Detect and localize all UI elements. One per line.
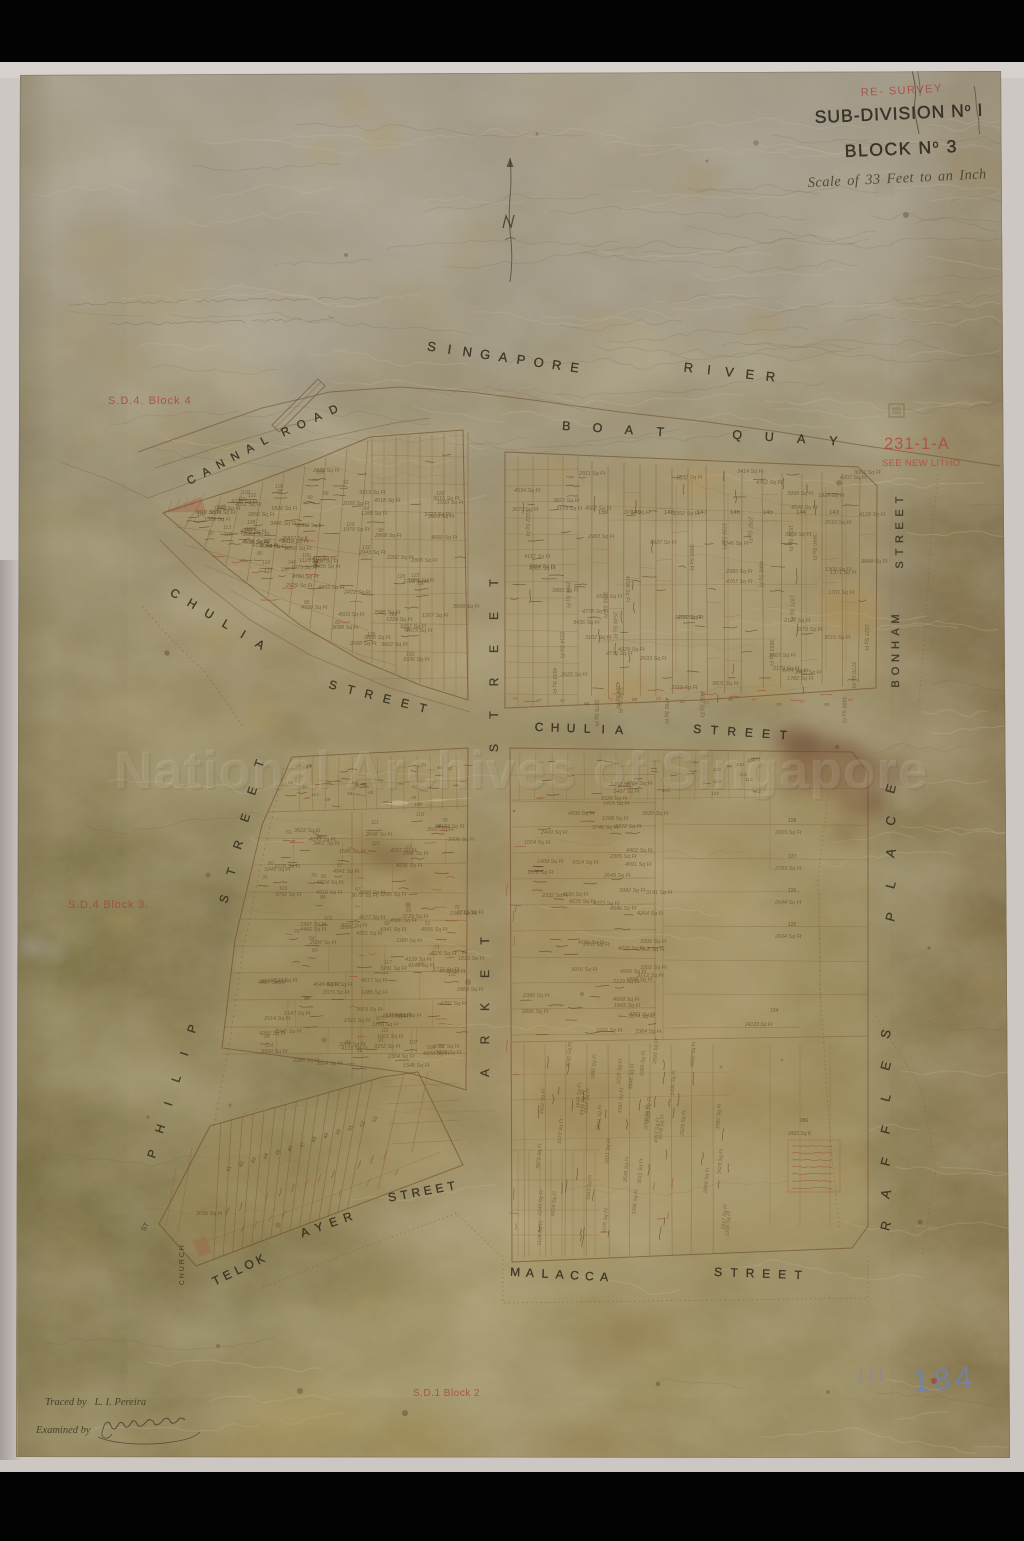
svg-text:2151 Sq Ft: 2151 Sq Ft xyxy=(582,942,610,948)
svg-text:3279 Sq Ft: 3279 Sq Ft xyxy=(593,700,599,727)
svg-text:A: A xyxy=(600,1270,609,1284)
svg-text:4201 Sq Ft: 4201 Sq Ft xyxy=(629,1012,656,1018)
svg-text:3489 Sq Ft: 3489 Sq Ft xyxy=(840,696,846,723)
svg-text:4540 Sq Ft: 4540 Sq Ft xyxy=(791,505,818,511)
svg-text:4580 Sq Ft: 4580 Sq Ft xyxy=(390,918,417,924)
svg-text:3461 Sq Ft: 3461 Sq Ft xyxy=(313,841,340,847)
svg-text:2856 Sq Ft: 2856 Sq Ft xyxy=(247,512,275,518)
svg-text:T: T xyxy=(656,425,665,440)
svg-text:107: 107 xyxy=(409,1040,418,1046)
svg-text:4260 Sq Ft: 4260 Sq Ft xyxy=(259,1031,286,1037)
svg-text:3399 Sq Ft: 3399 Sq Ft xyxy=(640,939,667,945)
svg-text:88: 88 xyxy=(320,895,326,901)
svg-text:26811 Sq ft: 26811 Sq ft xyxy=(295,523,322,529)
svg-text:R: R xyxy=(894,535,906,543)
svg-text:100: 100 xyxy=(197,512,206,518)
svg-text:3990 Sq Ft: 3990 Sq Ft xyxy=(261,1049,288,1055)
svg-text:145: 145 xyxy=(763,510,774,516)
svg-text:184: 184 xyxy=(911,1360,977,1399)
svg-text:2332 Sq Ft: 2332 Sq Ft xyxy=(541,893,569,899)
svg-text:R: R xyxy=(727,724,737,739)
svg-text:2673 Sq Ft: 2673 Sq Ft xyxy=(405,628,433,634)
svg-text:Examined by: Examined by xyxy=(35,1425,91,1436)
svg-text:1061 Sq Ft: 1061 Sq Ft xyxy=(377,1034,404,1040)
svg-text:A: A xyxy=(526,1266,535,1280)
svg-text:116: 116 xyxy=(340,925,348,931)
svg-text:3601 Sq Ft: 3601 Sq Ft xyxy=(712,681,739,687)
svg-text:4264 Sq Ft: 4264 Sq Ft xyxy=(637,911,664,917)
svg-text:2305 Sq Ft: 2305 Sq Ft xyxy=(609,854,637,860)
svg-text:O: O xyxy=(533,354,545,370)
svg-text:3672 Sq Ft: 3672 Sq Ft xyxy=(512,507,539,513)
svg-text:3827 Sq Ft: 3827 Sq Ft xyxy=(553,498,580,504)
svg-text:A: A xyxy=(555,1267,564,1281)
svg-text:57: 57 xyxy=(376,1016,382,1022)
svg-text:M: M xyxy=(890,614,902,623)
svg-text:A: A xyxy=(797,432,807,447)
svg-text:3714 Sq Ft: 3714 Sq Ft xyxy=(624,510,651,516)
svg-text:M: M xyxy=(510,1265,521,1280)
svg-text:3291 Sq Ft: 3291 Sq Ft xyxy=(380,966,407,972)
svg-text:2420 Sq ft: 2420 Sq ft xyxy=(787,1131,811,1137)
svg-text:1298 Sq Ft: 1298 Sq Ft xyxy=(675,615,702,621)
svg-text:80: 80 xyxy=(632,697,638,702)
svg-text:A: A xyxy=(478,1069,492,1077)
svg-text:66: 66 xyxy=(584,701,590,706)
svg-text:146: 146 xyxy=(730,510,741,516)
svg-text:3455 Sq Ft: 3455 Sq Ft xyxy=(314,564,341,570)
svg-text:100: 100 xyxy=(302,553,311,559)
svg-text:83: 83 xyxy=(560,698,566,703)
svg-text:3016 Sq Ft: 3016 Sq Ft xyxy=(824,635,851,641)
svg-text:T: T xyxy=(478,937,492,945)
svg-text:116: 116 xyxy=(372,841,380,847)
svg-text:1388 Sq Ft: 1388 Sq Ft xyxy=(204,517,231,523)
svg-text:51: 51 xyxy=(425,921,431,927)
svg-text:125: 125 xyxy=(788,922,797,928)
svg-text:103: 103 xyxy=(416,812,425,818)
svg-text:S: S xyxy=(714,1265,722,1279)
svg-text:1832 Sq Ft: 1832 Sq Ft xyxy=(676,475,703,481)
svg-text:1586 Sq Ft: 1586 Sq Ft xyxy=(339,849,366,855)
svg-text:64: 64 xyxy=(309,936,315,942)
svg-text:111: 111 xyxy=(238,497,246,503)
svg-text:2688 Sq Ft: 2688 Sq Ft xyxy=(349,641,377,647)
svg-text:1926 Sq Ft: 1926 Sq Ft xyxy=(596,1028,623,1034)
svg-text:U: U xyxy=(567,721,576,735)
svg-text:111: 111 xyxy=(371,820,379,826)
svg-text:National Archives of Singapore: National Archives of Singapore xyxy=(114,741,928,800)
svg-text:1004 Sq Ft: 1004 Sq Ft xyxy=(524,840,551,846)
svg-text:S.D.4 Block 3.: S.D.4 Block 3. xyxy=(68,899,149,911)
svg-text:3982 Sq Ft: 3982 Sq Ft xyxy=(619,888,646,894)
svg-text:71: 71 xyxy=(434,945,440,951)
svg-text:4796 Sq Ft: 4796 Sq Ft xyxy=(663,697,669,724)
svg-text:2865 Sq Ft: 2865 Sq Ft xyxy=(410,558,438,564)
svg-text:70: 70 xyxy=(311,873,317,879)
svg-text:1266 Sq Ft: 1266 Sq Ft xyxy=(372,1022,399,1028)
svg-text:126: 126 xyxy=(436,491,445,497)
svg-text:E: E xyxy=(478,970,492,978)
svg-text:4503 Sq Ft: 4503 Sq Ft xyxy=(338,612,365,618)
svg-text:4207 Sq Ft: 4207 Sq Ft xyxy=(840,475,867,481)
svg-text:4251 Sq Ft: 4251 Sq Ft xyxy=(356,931,383,937)
svg-text:103: 103 xyxy=(262,560,271,566)
svg-text:3679 Sq Ft: 3679 Sq Ft xyxy=(351,893,378,899)
svg-text:3152 Sq Ft: 3152 Sq Ft xyxy=(374,1044,401,1050)
svg-text:L: L xyxy=(541,1267,549,1281)
svg-text:3770 Sq Ft: 3770 Sq Ft xyxy=(850,662,856,689)
svg-text:U: U xyxy=(764,430,774,445)
svg-text:95: 95 xyxy=(824,702,830,707)
svg-text:E: E xyxy=(894,522,906,529)
svg-text:3569 Sq Ft: 3569 Sq Ft xyxy=(688,544,694,571)
svg-text:82: 82 xyxy=(321,874,327,880)
svg-text:90: 90 xyxy=(378,528,384,534)
svg-text:4691 Sq Ft: 4691 Sq Ft xyxy=(625,862,652,868)
svg-text:4666 Sq Ft: 4666 Sq Ft xyxy=(758,561,764,588)
svg-text:4345 Sq Ft: 4345 Sq Ft xyxy=(382,1014,409,1020)
svg-text:2604 Sq Ft: 2604 Sq Ft xyxy=(774,934,802,940)
svg-text:2449 Sq Ft: 2449 Sq Ft xyxy=(540,830,568,836)
svg-text:1502 Sq Ft: 1502 Sq Ft xyxy=(640,965,667,971)
svg-text:86: 86 xyxy=(323,491,329,497)
svg-text:84: 84 xyxy=(345,1040,351,1046)
svg-text:H: H xyxy=(179,1273,186,1279)
svg-text:3787 Sq Ft: 3787 Sq Ft xyxy=(433,1044,460,1050)
svg-text:121: 121 xyxy=(248,493,257,499)
svg-text:H: H xyxy=(551,720,560,734)
svg-text:79: 79 xyxy=(512,696,518,701)
svg-text:82: 82 xyxy=(335,620,341,626)
svg-text:103: 103 xyxy=(279,886,288,892)
svg-text:4128 Sq Ft: 4128 Sq Ft xyxy=(859,512,886,518)
svg-text:75: 75 xyxy=(776,702,782,707)
svg-text:2386 Sq Ft: 2386 Sq Ft xyxy=(292,1058,320,1064)
svg-text:57: 57 xyxy=(337,863,343,869)
svg-text:4195 Sq Ft: 4195 Sq Ft xyxy=(252,543,279,549)
svg-text:3702 Sq Ft: 3702 Sq Ft xyxy=(275,892,302,898)
svg-text:R: R xyxy=(746,1266,755,1280)
svg-text:55: 55 xyxy=(286,830,292,836)
svg-text:3773 Sq Ft: 3773 Sq Ft xyxy=(796,627,823,633)
svg-text:91: 91 xyxy=(343,480,349,486)
svg-text:R: R xyxy=(683,360,694,376)
svg-text:90: 90 xyxy=(208,531,214,537)
svg-text:118: 118 xyxy=(224,532,232,538)
svg-text:E: E xyxy=(487,645,501,653)
svg-text:2372 Sq Ft: 2372 Sq Ft xyxy=(614,824,642,830)
svg-text:E: E xyxy=(744,725,753,740)
svg-text:3375 Sq Ft: 3375 Sq Ft xyxy=(323,990,350,996)
svg-text:129: 129 xyxy=(346,522,355,528)
svg-text:2364 Sq Ft: 2364 Sq Ft xyxy=(634,1029,662,1035)
svg-text:S.D.4. Block 4: S.D.4. Block 4 xyxy=(108,395,192,407)
svg-text:4341 Sq Ft: 4341 Sq Ft xyxy=(380,927,407,933)
svg-text:3916 Sq Ft: 3916 Sq Ft xyxy=(571,967,598,973)
svg-text:4140 Sq Ft: 4140 Sq Ft xyxy=(408,963,435,969)
svg-text:108: 108 xyxy=(414,802,422,808)
svg-text:2633 Sq Ft: 2633 Sq Ft xyxy=(639,656,667,662)
svg-text:47: 47 xyxy=(536,698,542,703)
svg-text:3179 Sq Ft: 3179 Sq Ft xyxy=(556,506,583,512)
svg-text:3352 Sq Ft: 3352 Sq Ft xyxy=(673,511,700,517)
svg-text:2983 Sq Ft: 2983 Sq Ft xyxy=(725,569,753,575)
svg-text:127: 127 xyxy=(788,854,797,860)
svg-text:3190 Sq Ft: 3190 Sq Ft xyxy=(616,687,622,714)
svg-text:4265 Sq Ft: 4265 Sq Ft xyxy=(529,566,556,572)
svg-text:2321 Sq Ft: 2321 Sq Ft xyxy=(343,1018,371,1024)
svg-text:2127 Sq Ft: 2127 Sq Ft xyxy=(783,618,811,624)
svg-text:67: 67 xyxy=(752,697,758,702)
svg-text:4193 Sq Ft: 4193 Sq Ft xyxy=(438,824,465,830)
svg-text:4738 Sq Ft: 4738 Sq Ft xyxy=(439,969,466,975)
svg-text:4096 Sq Ft: 4096 Sq Ft xyxy=(624,576,630,603)
svg-text:4025 Sq Ft: 4025 Sq Ft xyxy=(618,946,645,952)
svg-text:86: 86 xyxy=(462,950,468,956)
svg-text:2783 Sq Ft: 2783 Sq Ft xyxy=(774,866,802,872)
svg-text:128: 128 xyxy=(788,818,797,824)
svg-text:4534 Sq Ft: 4534 Sq Ft xyxy=(514,488,541,494)
svg-text:1027 Sq Ft: 1027 Sq Ft xyxy=(863,624,869,651)
svg-text:84: 84 xyxy=(364,506,370,512)
svg-text:Traced by L. I. Pereira: Traced by L. I. Pereira xyxy=(45,1397,146,1408)
svg-text:4833 Sq Ft: 4833 Sq Ft xyxy=(551,667,557,694)
svg-text:E: E xyxy=(487,612,501,620)
svg-text:S.D.1 Block 2: S.D.1 Block 2 xyxy=(413,1388,480,1399)
svg-text:A: A xyxy=(624,423,634,438)
svg-text:2644 Sq Ft: 2644 Sq Ft xyxy=(774,900,802,906)
svg-text:Y: Y xyxy=(829,434,839,449)
svg-text:3658 Sq Ft: 3658 Sq Ft xyxy=(453,604,480,610)
svg-text:4562 Sq Ft: 4562 Sq Ft xyxy=(585,506,612,512)
svg-text:2010 Sq Ft: 2010 Sq Ft xyxy=(824,520,852,526)
svg-text:G: G xyxy=(479,346,491,362)
svg-text:T: T xyxy=(794,1268,802,1282)
svg-text:3102 Sq Ft: 3102 Sq Ft xyxy=(585,635,612,641)
svg-text:76: 76 xyxy=(294,929,300,935)
svg-text:3414 Sq Ft: 3414 Sq Ft xyxy=(737,469,764,475)
svg-text:N: N xyxy=(890,654,902,662)
svg-text:2214 Sq Ft: 2214 Sq Ft xyxy=(558,631,564,659)
svg-text:4068 Sq Ft: 4068 Sq Ft xyxy=(613,997,640,1003)
svg-text:143: 143 xyxy=(829,510,840,516)
svg-text:S: S xyxy=(693,722,702,737)
svg-text:3722 Sq Ft: 3722 Sq Ft xyxy=(424,512,451,518)
svg-text:3035 Sq Ft: 3035 Sq Ft xyxy=(196,1211,223,1217)
svg-text:2549 Sq Ft: 2549 Sq Ft xyxy=(611,611,617,639)
svg-text:45: 45 xyxy=(728,697,734,702)
svg-text:76: 76 xyxy=(454,905,460,911)
svg-text:61: 61 xyxy=(406,908,412,914)
svg-text:64: 64 xyxy=(848,697,854,702)
svg-text:2585 Sq Ft: 2585 Sq Ft xyxy=(373,610,401,616)
svg-text:T: T xyxy=(487,579,501,587)
svg-text:2606 Sq Ft: 2606 Sq Ft xyxy=(447,837,475,843)
svg-text:3058 Sq Ft: 3058 Sq Ft xyxy=(861,559,888,565)
svg-text:C: C xyxy=(585,1269,595,1283)
svg-text:4314 Sq Ft: 4314 Sq Ft xyxy=(572,860,599,866)
svg-text:SEE NEW LITHO: SEE NEW LITHO xyxy=(882,458,960,469)
svg-text:4941 Sq Ft: 4941 Sq Ft xyxy=(333,869,360,875)
svg-text:E: E xyxy=(894,509,906,516)
svg-text:3409 Sq Ft: 3409 Sq Ft xyxy=(435,1050,462,1056)
svg-text:U: U xyxy=(179,1266,186,1272)
svg-text:B: B xyxy=(562,419,571,434)
svg-text:3486 Sq Ft: 3486 Sq Ft xyxy=(270,521,297,527)
svg-text:4270 Sq Ft: 4270 Sq Ft xyxy=(569,899,596,905)
svg-text:3005 Sq Ft: 3005 Sq Ft xyxy=(209,510,236,516)
svg-text:1826 Sq Ft: 1826 Sq Ft xyxy=(271,506,298,512)
svg-text:139: 139 xyxy=(316,470,325,476)
svg-text:2147 Sq Ft: 2147 Sq Ft xyxy=(283,1011,311,1017)
svg-text:H: H xyxy=(179,1245,186,1251)
svg-text:4956 Sq Ft: 4956 Sq Ft xyxy=(421,927,448,933)
svg-text:4762 Sq Ft: 4762 Sq Ft xyxy=(756,480,783,486)
svg-text:2048 Sq Ft: 2048 Sq Ft xyxy=(365,832,393,838)
svg-text:T: T xyxy=(894,496,906,503)
svg-text:67: 67 xyxy=(355,887,361,893)
svg-text:4326 Sq Ft: 4326 Sq Ft xyxy=(326,982,353,988)
svg-text:1371 Sq Ft: 1371 Sq Ft xyxy=(830,570,857,576)
svg-text:88: 88 xyxy=(304,600,310,606)
svg-text:2890 Sq Ft: 2890 Sq Ft xyxy=(521,1009,549,1015)
svg-text:80: 80 xyxy=(317,835,323,841)
svg-text:25817 Sq ft: 25817 Sq ft xyxy=(281,536,308,542)
svg-text:4276 Sq Ft: 4276 Sq Ft xyxy=(430,951,457,957)
svg-text:113: 113 xyxy=(223,525,231,531)
svg-text:2797 Sq Ft: 2797 Sq Ft xyxy=(747,516,753,544)
svg-text:4767 Sq Ft: 4767 Sq Ft xyxy=(726,579,753,585)
svg-text:122: 122 xyxy=(362,545,371,551)
svg-text:117: 117 xyxy=(384,960,392,966)
svg-text:T: T xyxy=(730,1265,738,1279)
svg-text:122: 122 xyxy=(411,573,420,579)
svg-text:80: 80 xyxy=(268,861,274,867)
svg-text:60: 60 xyxy=(312,948,318,954)
svg-text:A: A xyxy=(615,723,623,737)
svg-text:4677 Sq Ft: 4677 Sq Ft xyxy=(359,915,386,921)
svg-text:78: 78 xyxy=(442,818,448,824)
svg-text:4236 Sq Ft: 4236 Sq Ft xyxy=(396,863,423,869)
svg-text:4937 Sq Ft: 4937 Sq Ft xyxy=(650,540,677,546)
svg-text:2966 Sq Ft: 2966 Sq Ft xyxy=(565,580,571,608)
svg-text:95: 95 xyxy=(262,875,268,881)
svg-text:3625 Sq Ft: 3625 Sq Ft xyxy=(561,672,588,678)
svg-text:I: I xyxy=(601,722,605,736)
svg-text:3883 Sq Ft: 3883 Sq Ft xyxy=(552,588,579,594)
svg-text:140: 140 xyxy=(288,560,297,566)
svg-text:1207 Sq Ft: 1207 Sq Ft xyxy=(422,613,449,619)
svg-text:1593 Sq Ft: 1593 Sq Ft xyxy=(437,500,464,506)
svg-text:K: K xyxy=(478,1003,492,1011)
svg-text:C: C xyxy=(535,720,544,734)
svg-text:4167 Sq Ft: 4167 Sq Ft xyxy=(390,848,417,854)
svg-text:E: E xyxy=(762,727,771,742)
svg-text:3913 Sq Ft: 3913 Sq Ft xyxy=(359,490,386,496)
svg-text:O: O xyxy=(890,666,902,675)
svg-text:3520 Sq Ft: 3520 Sq Ft xyxy=(642,811,669,817)
svg-text:2864 Sq Ft: 2864 Sq Ft xyxy=(456,987,484,993)
svg-text:92: 92 xyxy=(384,921,390,927)
svg-text:3141 Sq Ft: 3141 Sq Ft xyxy=(646,890,673,896)
svg-text:106: 106 xyxy=(275,484,284,490)
svg-text:4739 Sq Ft: 4739 Sq Ft xyxy=(606,651,633,657)
svg-text:A: A xyxy=(890,628,902,636)
svg-text:3522 Sq Ft: 3522 Sq Ft xyxy=(294,828,321,834)
svg-text:1298 Sq Ft: 1298 Sq Ft xyxy=(602,816,629,822)
svg-text:B: B xyxy=(890,680,902,687)
svg-text:4518 Sq Ft: 4518 Sq Ft xyxy=(374,498,401,504)
svg-text:2202 Sq Ft: 2202 Sq Ft xyxy=(386,555,414,561)
svg-text:T: T xyxy=(487,711,501,719)
svg-text:E: E xyxy=(762,1267,770,1281)
svg-text:2983 Sq Ft: 2983 Sq Ft xyxy=(587,534,615,540)
svg-text:4246 Sq Ft: 4246 Sq Ft xyxy=(722,541,749,547)
svg-text:4946 Sq Ft: 4946 Sq Ft xyxy=(610,906,637,912)
svg-text:124: 124 xyxy=(770,1008,779,1014)
svg-text:4325 Sq Ft: 4325 Sq Ft xyxy=(596,594,623,600)
svg-text:1409 Sq Ft: 1409 Sq Ft xyxy=(537,859,564,865)
svg-text:4128 Sq Ft: 4128 Sq Ft xyxy=(405,957,432,963)
svg-text:34: 34 xyxy=(704,700,710,705)
svg-text:S: S xyxy=(487,744,501,752)
svg-text:3436 Sq Ft: 3436 Sq Ft xyxy=(573,620,600,626)
svg-text:2380 Sq Ft: 2380 Sq Ft xyxy=(522,993,550,999)
svg-text:71: 71 xyxy=(608,697,614,702)
svg-text:R: R xyxy=(487,677,501,686)
svg-text:1843 Sq Ft: 1843 Sq Ft xyxy=(614,1003,641,1009)
svg-text:2179 Sq Ft: 2179 Sq Ft xyxy=(772,666,800,672)
svg-text:4830 Sq Ft: 4830 Sq Ft xyxy=(568,811,595,817)
svg-text:2361 Sq Ft: 2361 Sq Ft xyxy=(449,911,477,917)
svg-text:1782 Sq Ft: 1782 Sq Ft xyxy=(787,676,814,682)
svg-text:R: R xyxy=(765,369,776,385)
svg-text:2304 Sq Ft: 2304 Sq Ft xyxy=(387,1054,415,1060)
svg-text:286: 286 xyxy=(800,1118,809,1124)
svg-text:89: 89 xyxy=(656,696,662,701)
svg-text:E: E xyxy=(778,1267,786,1281)
svg-text:H: H xyxy=(890,641,902,649)
svg-text:3564 Sq Ft: 3564 Sq Ft xyxy=(316,1061,343,1067)
svg-text:2655 Sq Ft: 2655 Sq Ft xyxy=(774,830,802,836)
svg-text:4133 Sq Ft: 4133 Sq Ft xyxy=(341,1046,368,1052)
svg-text:R: R xyxy=(478,1035,492,1044)
svg-text:3999 Sq Ft: 3999 Sq Ft xyxy=(787,491,814,497)
svg-text:T: T xyxy=(894,548,906,555)
svg-text:2649 Sq Ft: 2649 Sq Ft xyxy=(603,873,631,879)
svg-text:73: 73 xyxy=(357,1048,363,1054)
svg-text:R: R xyxy=(179,1259,186,1265)
svg-text:1701 Sq Ft: 1701 Sq Ft xyxy=(828,590,855,596)
svg-text:24123 Sq Ft: 24123 Sq Ft xyxy=(744,1022,773,1028)
svg-text:126: 126 xyxy=(788,888,797,894)
svg-text:C: C xyxy=(179,1252,186,1258)
svg-text:4617 Sq Ft: 4617 Sq Ft xyxy=(361,978,388,984)
svg-text:S: S xyxy=(894,561,906,568)
svg-text:21: 21 xyxy=(679,699,686,704)
svg-text:80: 80 xyxy=(257,551,263,557)
svg-text:O: O xyxy=(592,421,603,436)
svg-text:4157 Sq Ft: 4157 Sq Ft xyxy=(524,554,551,560)
svg-text:C: C xyxy=(179,1280,186,1286)
svg-text:103: 103 xyxy=(324,916,333,922)
svg-text:111: 111 xyxy=(381,1028,389,1034)
svg-text:C: C xyxy=(570,1268,580,1282)
svg-text:90: 90 xyxy=(307,495,313,501)
svg-text:1215 Sq Ft: 1215 Sq Ft xyxy=(458,956,485,962)
svg-text:136: 136 xyxy=(367,632,376,638)
